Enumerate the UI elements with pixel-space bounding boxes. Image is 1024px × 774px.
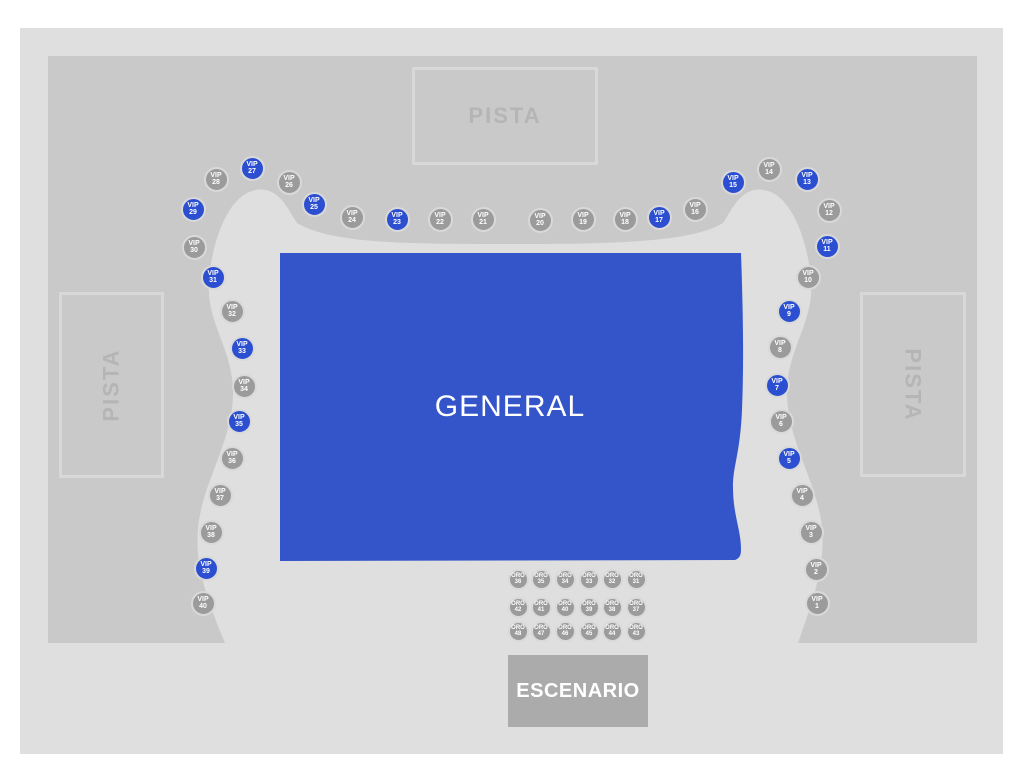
vip-seat-4[interactable]: VIP4 (790, 483, 815, 508)
oro-seat-31[interactable]: ORO31 (626, 569, 647, 590)
pista-left-label: PISTA (99, 348, 125, 421)
seat-number: 19 (579, 219, 587, 226)
seat-number: 8 (778, 347, 782, 354)
seat-number: 33 (586, 579, 593, 585)
seat-number: 5 (787, 458, 791, 465)
vip-seat-23[interactable]: VIP23 (385, 207, 410, 232)
seat-number: 32 (609, 579, 616, 585)
pista-top-label: PISTA (468, 103, 541, 129)
seat-number: 39 (586, 607, 593, 613)
seat-number: 48 (515, 631, 522, 637)
seat-number: 30 (190, 247, 198, 254)
venue-seat-map: PISTA PISTA PISTA GENERAL ESCENARIO VIP1… (0, 0, 1024, 774)
seat-label: VIP (783, 304, 794, 311)
seat-number: 17 (655, 217, 663, 224)
seat-label: VIP (238, 379, 249, 386)
vip-seat-34[interactable]: VIP34 (232, 374, 257, 399)
seat-number: 37 (216, 495, 224, 502)
seat-number: 45 (586, 631, 593, 637)
seat-label: VIP (653, 210, 664, 217)
seat-number: 1 (815, 603, 819, 610)
vip-seat-5[interactable]: VIP5 (777, 446, 802, 471)
vip-seat-30[interactable]: VIP30 (182, 235, 207, 260)
seat-number: 12 (825, 210, 833, 217)
seat-label: VIP (236, 341, 247, 348)
oro-seat-37[interactable]: ORO37 (626, 597, 647, 618)
seat-label: VIP (783, 451, 794, 458)
vip-seat-18[interactable]: VIP18 (613, 207, 638, 232)
seat-label: VIP (811, 596, 822, 603)
seat-number: 32 (228, 311, 236, 318)
seat-number: 47 (538, 631, 545, 637)
vip-seat-25[interactable]: VIP25 (302, 192, 327, 217)
seat-number: 27 (248, 168, 256, 175)
seat-number: 43 (633, 631, 640, 637)
seat-number: 36 (228, 458, 236, 465)
seat-label: VIP (391, 212, 402, 219)
seat-label: VIP (796, 488, 807, 495)
seat-label: VIP (246, 161, 257, 168)
seat-label: VIP (308, 197, 319, 204)
vip-seat-17[interactable]: VIP17 (647, 205, 672, 230)
vip-seat-16[interactable]: VIP16 (683, 197, 708, 222)
seat-number: 40 (199, 603, 207, 610)
seat-number: 15 (729, 182, 737, 189)
seat-label: VIP (210, 172, 221, 179)
seat-number: 38 (207, 532, 215, 539)
oro-seat-45[interactable]: ORO45 (579, 621, 600, 642)
vip-seat-13[interactable]: VIP13 (795, 167, 820, 192)
vip-seat-26[interactable]: VIP26 (277, 170, 302, 195)
seat-number: 37 (633, 607, 640, 613)
seat-number: 38 (609, 607, 616, 613)
seat-label: VIP (771, 378, 782, 385)
seat-number: 26 (285, 182, 293, 189)
vip-seat-36[interactable]: VIP36 (220, 446, 245, 471)
seat-label: VIP (226, 451, 237, 458)
seat-label: VIP (346, 210, 357, 217)
vip-seat-15[interactable]: VIP15 (721, 170, 746, 195)
oro-seat-41[interactable]: ORO41 (531, 597, 552, 618)
seat-number: 14 (765, 169, 773, 176)
vip-seat-11[interactable]: VIP11 (815, 234, 840, 259)
seat-label: VIP (727, 175, 738, 182)
vip-seat-22[interactable]: VIP22 (428, 207, 453, 232)
seat-number: 25 (310, 204, 318, 211)
pista-zone-top[interactable]: PISTA (412, 67, 598, 165)
oro-seat-47[interactable]: ORO47 (531, 621, 552, 642)
general-area-shape[interactable] (280, 253, 743, 561)
oro-seat-40[interactable]: ORO40 (555, 597, 576, 618)
seat-label: VIP (619, 212, 630, 219)
oro-seat-46[interactable]: ORO46 (555, 621, 576, 642)
seat-number: 24 (348, 217, 356, 224)
vip-seat-20[interactable]: VIP20 (528, 208, 553, 233)
seat-number: 4 (800, 495, 804, 502)
seat-label: VIP (205, 525, 216, 532)
vip-seat-32[interactable]: VIP32 (220, 299, 245, 324)
seat-label: VIP (823, 203, 834, 210)
seat-label: VIP (810, 562, 821, 569)
seat-label: VIP (534, 213, 545, 220)
oro-seat-34[interactable]: ORO34 (555, 569, 576, 590)
oro-seat-48[interactable]: ORO48 (508, 621, 529, 642)
seat-number: 42 (515, 607, 522, 613)
seat-number: 13 (803, 179, 811, 186)
vip-seat-31[interactable]: VIP31 (201, 265, 226, 290)
seat-number: 10 (804, 277, 812, 284)
seat-number: 34 (562, 579, 569, 585)
vip-seat-28[interactable]: VIP28 (204, 167, 229, 192)
seat-number: 40 (562, 607, 569, 613)
seat-number: 21 (479, 219, 487, 226)
pista-right-label: PISTA (900, 348, 926, 421)
vip-seat-3[interactable]: VIP3 (799, 520, 824, 545)
seat-label: VIP (214, 488, 225, 495)
oro-seat-38[interactable]: ORO38 (602, 597, 623, 618)
seat-number: 28 (212, 179, 220, 186)
oro-seat-43[interactable]: ORO43 (626, 621, 647, 642)
vip-seat-2[interactable]: VIP2 (804, 557, 829, 582)
vip-seat-29[interactable]: VIP29 (181, 197, 206, 222)
seat-label: VIP (689, 202, 700, 209)
seat-number: 46 (562, 631, 569, 637)
seat-number: 44 (609, 631, 616, 637)
vip-seat-12[interactable]: VIP12 (817, 198, 842, 223)
oro-seat-39[interactable]: ORO39 (579, 597, 600, 618)
vip-seat-39[interactable]: VIP39 (194, 556, 219, 581)
seat-label: VIP (774, 340, 785, 347)
seat-number: 35 (235, 421, 243, 428)
seat-number: 29 (189, 209, 197, 216)
seat-label: VIP (197, 596, 208, 603)
vip-seat-8[interactable]: VIP8 (768, 335, 793, 360)
seat-number: 41 (538, 607, 545, 613)
vip-seat-38[interactable]: VIP38 (199, 520, 224, 545)
seat-label: VIP (434, 212, 445, 219)
seat-number: 20 (536, 220, 544, 227)
seat-number: 7 (775, 385, 779, 392)
pista-zone-right[interactable]: PISTA (860, 292, 966, 477)
vip-seat-33[interactable]: VIP33 (230, 336, 255, 361)
seat-number: 3 (809, 532, 813, 539)
seat-label: VIP (187, 202, 198, 209)
seat-number: 22 (436, 219, 444, 226)
vip-seat-7[interactable]: VIP7 (765, 373, 790, 398)
oro-seat-44[interactable]: ORO44 (602, 621, 623, 642)
pista-zone-left[interactable]: PISTA (59, 292, 164, 478)
vip-seat-40[interactable]: VIP40 (191, 591, 216, 616)
vip-seat-24[interactable]: VIP24 (340, 205, 365, 230)
seat-number: 39 (202, 568, 210, 575)
seat-label: VIP (477, 212, 488, 219)
seat-number: 35 (538, 579, 545, 585)
stage-box: ESCENARIO (508, 655, 648, 727)
seat-number: 34 (240, 386, 248, 393)
oro-seat-36[interactable]: ORO36 (508, 569, 529, 590)
seat-number: 23 (393, 219, 401, 226)
seat-number: 18 (621, 219, 629, 226)
seat-label: VIP (805, 525, 816, 532)
seat-label: VIP (226, 304, 237, 311)
vip-seat-10[interactable]: VIP10 (796, 265, 821, 290)
seat-number: 11 (823, 246, 830, 253)
oro-seat-42[interactable]: ORO42 (508, 597, 529, 618)
seat-number: 9 (787, 311, 791, 318)
vip-seat-9[interactable]: VIP9 (777, 299, 802, 324)
seat-number: 36 (515, 579, 522, 585)
seat-label: VIP (283, 175, 294, 182)
seat-number: 16 (691, 209, 699, 216)
vip-seat-27[interactable]: VIP27 (240, 156, 265, 181)
seat-label: VIP (821, 239, 832, 246)
seat-number: 31 (633, 579, 640, 585)
seat-number: 33 (238, 348, 246, 355)
vip-seat-35[interactable]: VIP35 (227, 409, 252, 434)
seat-label: VIP (207, 270, 218, 277)
vip-seat-19[interactable]: VIP19 (571, 207, 596, 232)
oro-seat-32[interactable]: ORO32 (602, 569, 623, 590)
seat-label: VIP (801, 172, 812, 179)
oro-seat-35[interactable]: ORO35 (531, 569, 552, 590)
vip-seat-6[interactable]: VIP6 (769, 409, 794, 434)
seat-label: VIP (200, 561, 211, 568)
seat-label: VIP (577, 212, 588, 219)
oro-seat-33[interactable]: ORO33 (579, 569, 600, 590)
seat-number: 2 (814, 569, 818, 576)
vip-seat-14[interactable]: VIP14 (757, 157, 782, 182)
vip-seat-37[interactable]: VIP37 (208, 483, 233, 508)
seat-label: VIP (763, 162, 774, 169)
vip-seat-1[interactable]: VIP1 (805, 591, 830, 616)
seat-number: 6 (779, 421, 783, 428)
seat-number: 31 (209, 277, 217, 284)
seat-label: VIP (188, 240, 199, 247)
seat-label: VIP (802, 270, 813, 277)
seat-label: VIP (775, 414, 786, 421)
seat-label: VIP (233, 414, 244, 421)
vip-seat-21[interactable]: VIP21 (471, 207, 496, 232)
stage-label: ESCENARIO (516, 680, 639, 703)
